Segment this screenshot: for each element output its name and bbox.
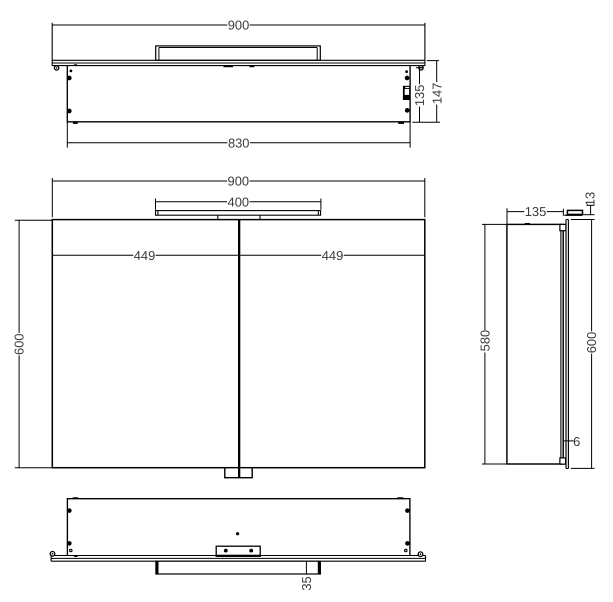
svg-text:580: 580	[478, 330, 493, 352]
svg-text:449: 449	[322, 248, 344, 263]
svg-text:35: 35	[299, 576, 314, 590]
svg-text:600: 600	[584, 332, 599, 354]
svg-text:135: 135	[525, 204, 547, 219]
svg-text:830: 830	[228, 135, 250, 150]
svg-text:6: 6	[573, 434, 580, 449]
svg-text:13: 13	[582, 192, 597, 206]
svg-text:900: 900	[228, 18, 250, 33]
svg-text:400: 400	[228, 194, 250, 209]
svg-text:135: 135	[412, 85, 427, 107]
svg-text:147: 147	[429, 83, 444, 105]
svg-text:600: 600	[12, 333, 27, 355]
svg-text:900: 900	[228, 174, 250, 189]
svg-text:449: 449	[134, 248, 156, 263]
